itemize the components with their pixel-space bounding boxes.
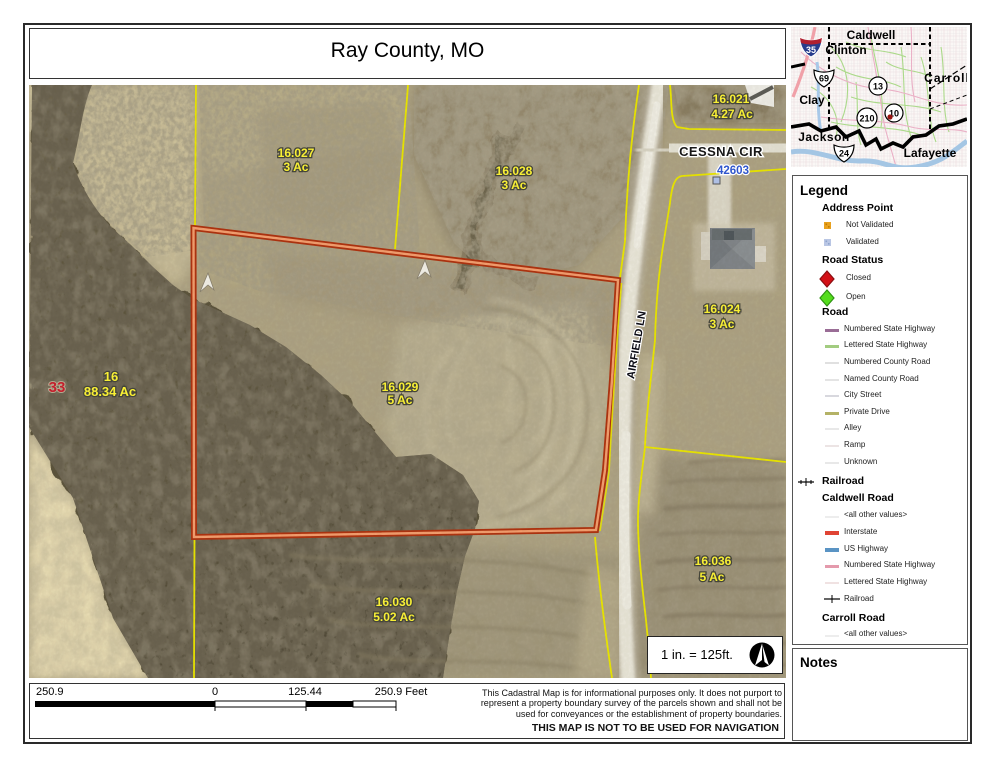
svg-text:16: 16 bbox=[104, 369, 118, 384]
svg-text:210: 210 bbox=[859, 114, 874, 124]
svg-text:24: 24 bbox=[839, 149, 849, 159]
svg-text:Clay: Clay bbox=[799, 93, 825, 107]
svg-text:16.027: 16.027 bbox=[278, 146, 315, 160]
svg-text:3 Ac: 3 Ac bbox=[710, 317, 735, 331]
svg-text:Jackson: Jackson bbox=[798, 130, 850, 144]
svg-text:33: 33 bbox=[49, 379, 66, 396]
svg-text:CESSNA CIR: CESSNA CIR bbox=[679, 144, 763, 159]
svg-text:3 Ac: 3 Ac bbox=[284, 160, 309, 174]
svg-text:Clinton: Clinton bbox=[825, 43, 866, 57]
svg-text:4.27 Ac: 4.27 Ac bbox=[711, 107, 753, 121]
svg-text:69: 69 bbox=[819, 74, 829, 84]
svg-text:Caldwell: Caldwell bbox=[847, 28, 896, 42]
svg-text:3 Ac: 3 Ac bbox=[502, 178, 527, 192]
svg-text:Lafayette: Lafayette bbox=[904, 146, 957, 160]
svg-text:16.024: 16.024 bbox=[704, 302, 741, 316]
svg-text:16.029: 16.029 bbox=[382, 380, 419, 394]
svg-text:5 Ac: 5 Ac bbox=[388, 393, 413, 407]
svg-text:42603: 42603 bbox=[717, 165, 749, 177]
svg-text:13: 13 bbox=[873, 82, 883, 92]
svg-text:16.036: 16.036 bbox=[695, 554, 732, 568]
svg-text:16.030: 16.030 bbox=[376, 595, 413, 609]
svg-text:88.34 Ac: 88.34 Ac bbox=[84, 384, 136, 399]
svg-text:16.028: 16.028 bbox=[496, 164, 533, 178]
svg-text:5 Ac: 5 Ac bbox=[700, 570, 725, 584]
svg-text:35: 35 bbox=[806, 45, 816, 55]
svg-text:16.021: 16.021 bbox=[713, 92, 750, 106]
svg-text:Carroll: Carroll bbox=[924, 71, 967, 85]
svg-text:5.02 Ac: 5.02 Ac bbox=[373, 610, 415, 624]
